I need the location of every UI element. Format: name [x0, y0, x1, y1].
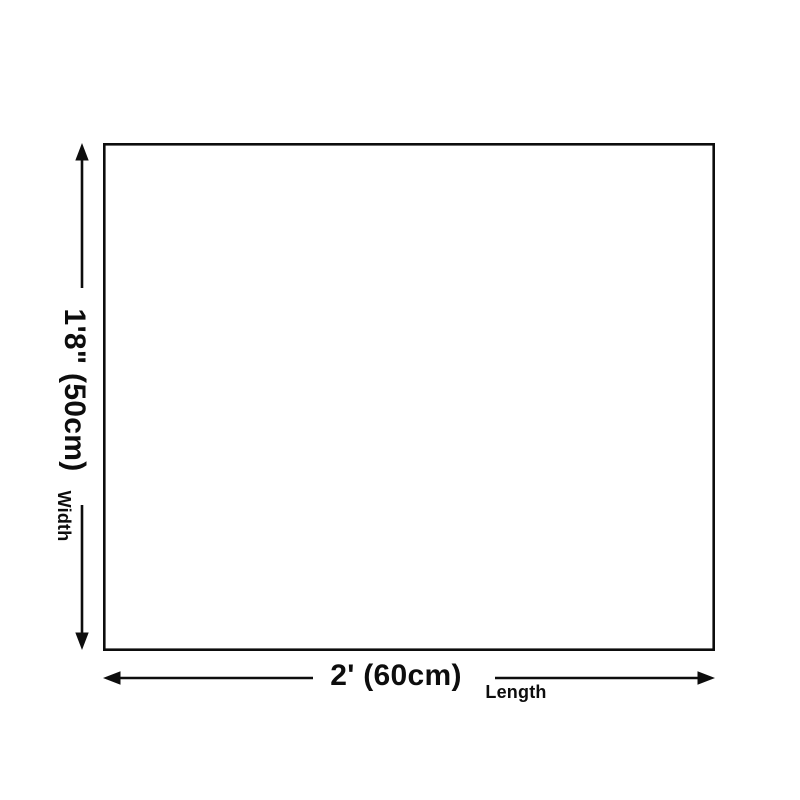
right-arrowhead-icon — [698, 671, 716, 684]
width-axis-label: Width — [55, 491, 73, 542]
up-arrowhead-icon — [75, 143, 88, 161]
length-value-label: 2' (60cm) — [330, 661, 462, 691]
left-arrowhead-icon — [103, 671, 121, 684]
down-arrowhead-icon — [75, 633, 88, 651]
width-value-label: 1'8" (50cm) — [59, 308, 89, 471]
dimension-diagram: 1'8" (50cm) Width 2' (60cm) Length — [0, 0, 800, 800]
length-axis-label: Length — [485, 683, 546, 701]
product-outline-rect — [104, 144, 713, 649]
